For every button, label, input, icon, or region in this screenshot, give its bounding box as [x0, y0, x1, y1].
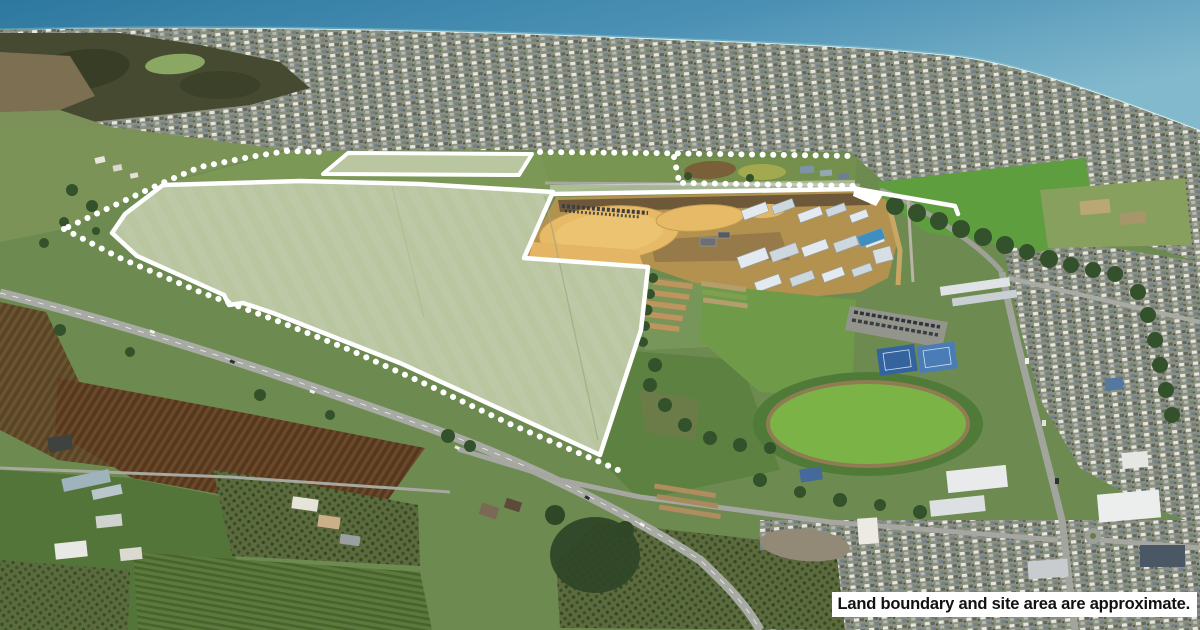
horse-paddocks — [1040, 178, 1192, 248]
football-oval — [768, 382, 968, 466]
aerial-site-photo: Land boundary and site area are approxim… — [0, 0, 1200, 630]
strip-parcel-fill — [323, 153, 532, 175]
large-store-roof — [1097, 489, 1161, 522]
aerial-photo-canvas — [0, 0, 1200, 630]
disclaimer-label: Land boundary and site area are approxim… — [832, 592, 1197, 617]
